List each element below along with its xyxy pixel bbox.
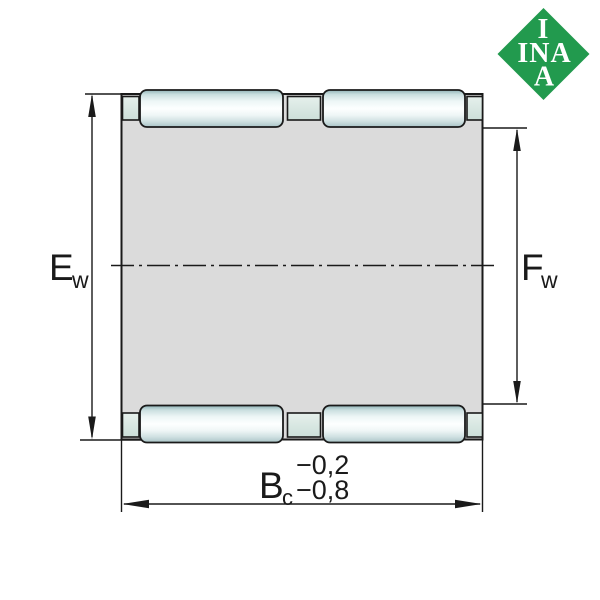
ina-logo: I INA A <box>498 8 590 100</box>
bc-arrow-left <box>123 500 150 509</box>
needle-roller <box>323 90 465 127</box>
ew-arrow-up <box>88 94 96 117</box>
fw-label: Fw <box>521 247 558 293</box>
ina-logo-letter-bottom: A <box>534 62 555 93</box>
ew-label: Ew <box>49 247 89 293</box>
fw-arrow-down <box>513 381 521 404</box>
crossbar <box>123 413 140 437</box>
bearing-technical-drawing: Ew Fw Bc −0,2 −0,8 I INA A <box>0 0 600 600</box>
crossbar <box>123 97 140 121</box>
bc-tolerance-lower: −0,8 <box>296 475 349 505</box>
bc-label: Bc <box>259 465 293 510</box>
cage-body <box>122 94 483 440</box>
crossbar <box>288 97 321 121</box>
fw-arrow-up <box>513 129 521 152</box>
ew-arrow-down <box>88 417 96 440</box>
crossbar <box>467 97 483 121</box>
dimension-bc: Bc −0,2 −0,8 <box>123 450 482 510</box>
crossbar <box>288 413 321 437</box>
dimension-ew: Ew <box>49 94 96 440</box>
dimension-fw: Fw <box>513 129 558 404</box>
bearing-drawing-page: Ew Fw Bc −0,2 −0,8 I INA A <box>0 0 600 600</box>
needle-roller <box>140 406 283 443</box>
crossbar <box>467 413 483 437</box>
needle-roller <box>323 406 465 443</box>
bc-arrow-right <box>455 500 482 509</box>
needle-roller <box>140 90 283 127</box>
